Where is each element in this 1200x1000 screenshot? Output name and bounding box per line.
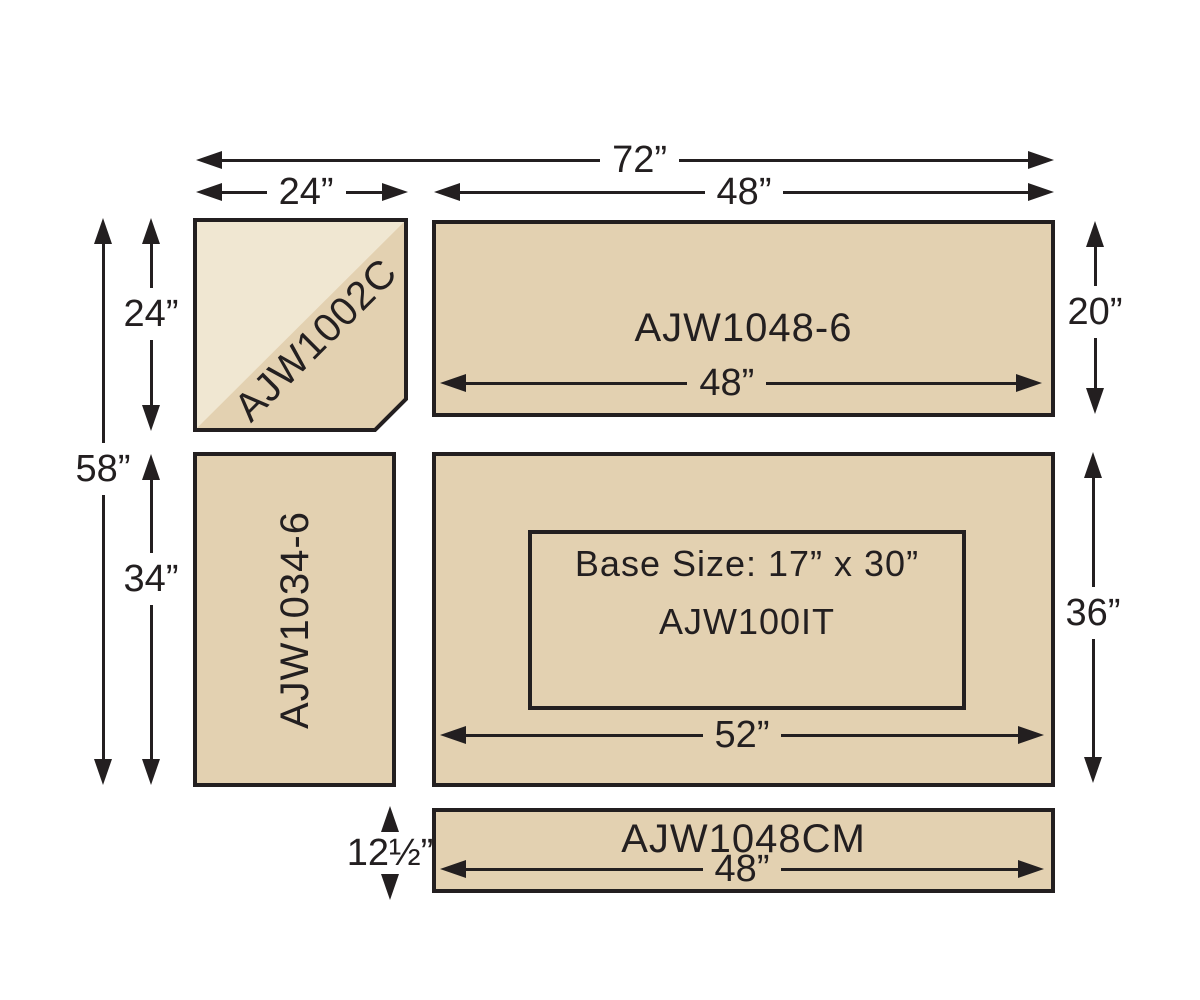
- dim-line: [102, 495, 105, 759]
- dim-top-width: 48”: [434, 170, 1054, 214]
- dim-corner-width-label: 24”: [267, 173, 346, 211]
- arrowhead-down-icon: [142, 759, 160, 785]
- arrowhead-left-icon: [434, 183, 460, 201]
- dim-island-height: 36”: [1071, 452, 1115, 783]
- dim-line: [150, 340, 153, 405]
- dim-line: [679, 159, 1028, 162]
- arrowhead-left-icon: [196, 183, 222, 201]
- arrowhead-down-icon: [381, 874, 399, 900]
- dim-line: [1094, 338, 1097, 388]
- dim-line: [346, 191, 382, 194]
- countertop-layout-diagram: AJW1002C AJW1048-6 AJW1034-6 Base Size: …: [0, 0, 1200, 1000]
- dim-top-height-label: 20”: [1068, 286, 1123, 338]
- dim-strip-height: 12½”: [348, 806, 432, 900]
- dim-top-inner-width: 48”: [440, 361, 1042, 405]
- dim-island-width-label: 52”: [703, 716, 782, 754]
- panel-corner: AJW1002C: [193, 218, 408, 432]
- dim-line: [466, 734, 703, 737]
- dim-line: [783, 191, 1028, 194]
- arrowhead-right-icon: [382, 183, 408, 201]
- arrowhead-down-icon: [94, 759, 112, 785]
- dim-line: [781, 868, 1018, 871]
- dim-line: [222, 191, 267, 194]
- dim-island-height-label: 36”: [1066, 587, 1121, 639]
- dim-total-height: 58”: [81, 218, 125, 785]
- arrowhead-up-icon: [1086, 221, 1104, 247]
- dim-top-height: 20”: [1073, 221, 1117, 414]
- top-panel-label: AJW1048-6: [436, 308, 1051, 348]
- arrowhead-right-icon: [1028, 151, 1054, 169]
- arrowhead-right-icon: [1018, 726, 1044, 744]
- dim-line: [150, 244, 153, 288]
- dim-line: [150, 480, 153, 553]
- arrowhead-up-icon: [94, 218, 112, 244]
- arrowhead-left-icon: [440, 726, 466, 744]
- arrowhead-left-icon: [196, 151, 222, 169]
- dim-line: [466, 382, 687, 385]
- dim-line: [766, 382, 1016, 385]
- arrowhead-down-icon: [1086, 388, 1104, 414]
- dim-corner-width: 24”: [196, 170, 408, 214]
- arrowhead-left-icon: [440, 860, 466, 878]
- island-base-outline: Base Size: 17” x 30” AJW100IT: [528, 530, 966, 710]
- dim-total-height-label: 58”: [76, 443, 131, 495]
- left-panel-label: AJW1034-6: [275, 511, 315, 729]
- dim-line: [460, 191, 705, 194]
- arrowhead-right-icon: [1018, 860, 1044, 878]
- arrowhead-up-icon: [142, 218, 160, 244]
- arrowhead-down-icon: [1084, 757, 1102, 783]
- arrowhead-up-icon: [1084, 452, 1102, 478]
- dim-strip-width-label: 48”: [703, 850, 782, 888]
- panel-left: AJW1034-6: [193, 452, 396, 787]
- island-panel-label: AJW100IT: [532, 604, 962, 640]
- dim-line: [781, 734, 1018, 737]
- arrowhead-down-icon: [142, 405, 160, 431]
- dim-corner-height: 24”: [129, 218, 173, 431]
- dim-line: [222, 159, 600, 162]
- dim-line: [1092, 639, 1095, 757]
- dim-line: [1092, 478, 1095, 587]
- dim-strip-height-label: 12½”: [347, 832, 434, 874]
- arrowhead-up-icon: [142, 454, 160, 480]
- dim-line: [102, 244, 105, 443]
- dim-island-width: 52”: [440, 713, 1044, 757]
- dim-left-height: 34”: [129, 454, 173, 785]
- dim-left-height-label: 34”: [124, 553, 179, 605]
- dim-line: [1094, 247, 1097, 286]
- arrowhead-left-icon: [440, 374, 466, 392]
- arrowhead-right-icon: [1016, 374, 1042, 392]
- dim-strip-width: 48”: [440, 847, 1044, 891]
- dim-top-inner-width-label: 48”: [687, 364, 766, 402]
- dim-line: [150, 605, 153, 759]
- arrowhead-up-icon: [381, 806, 399, 832]
- dim-top-width-label: 48”: [705, 173, 784, 211]
- arrowhead-right-icon: [1028, 183, 1054, 201]
- dim-corner-height-label: 24”: [124, 288, 179, 340]
- dim-line: [466, 868, 703, 871]
- island-base-size-label: Base Size: 17” x 30”: [532, 546, 962, 582]
